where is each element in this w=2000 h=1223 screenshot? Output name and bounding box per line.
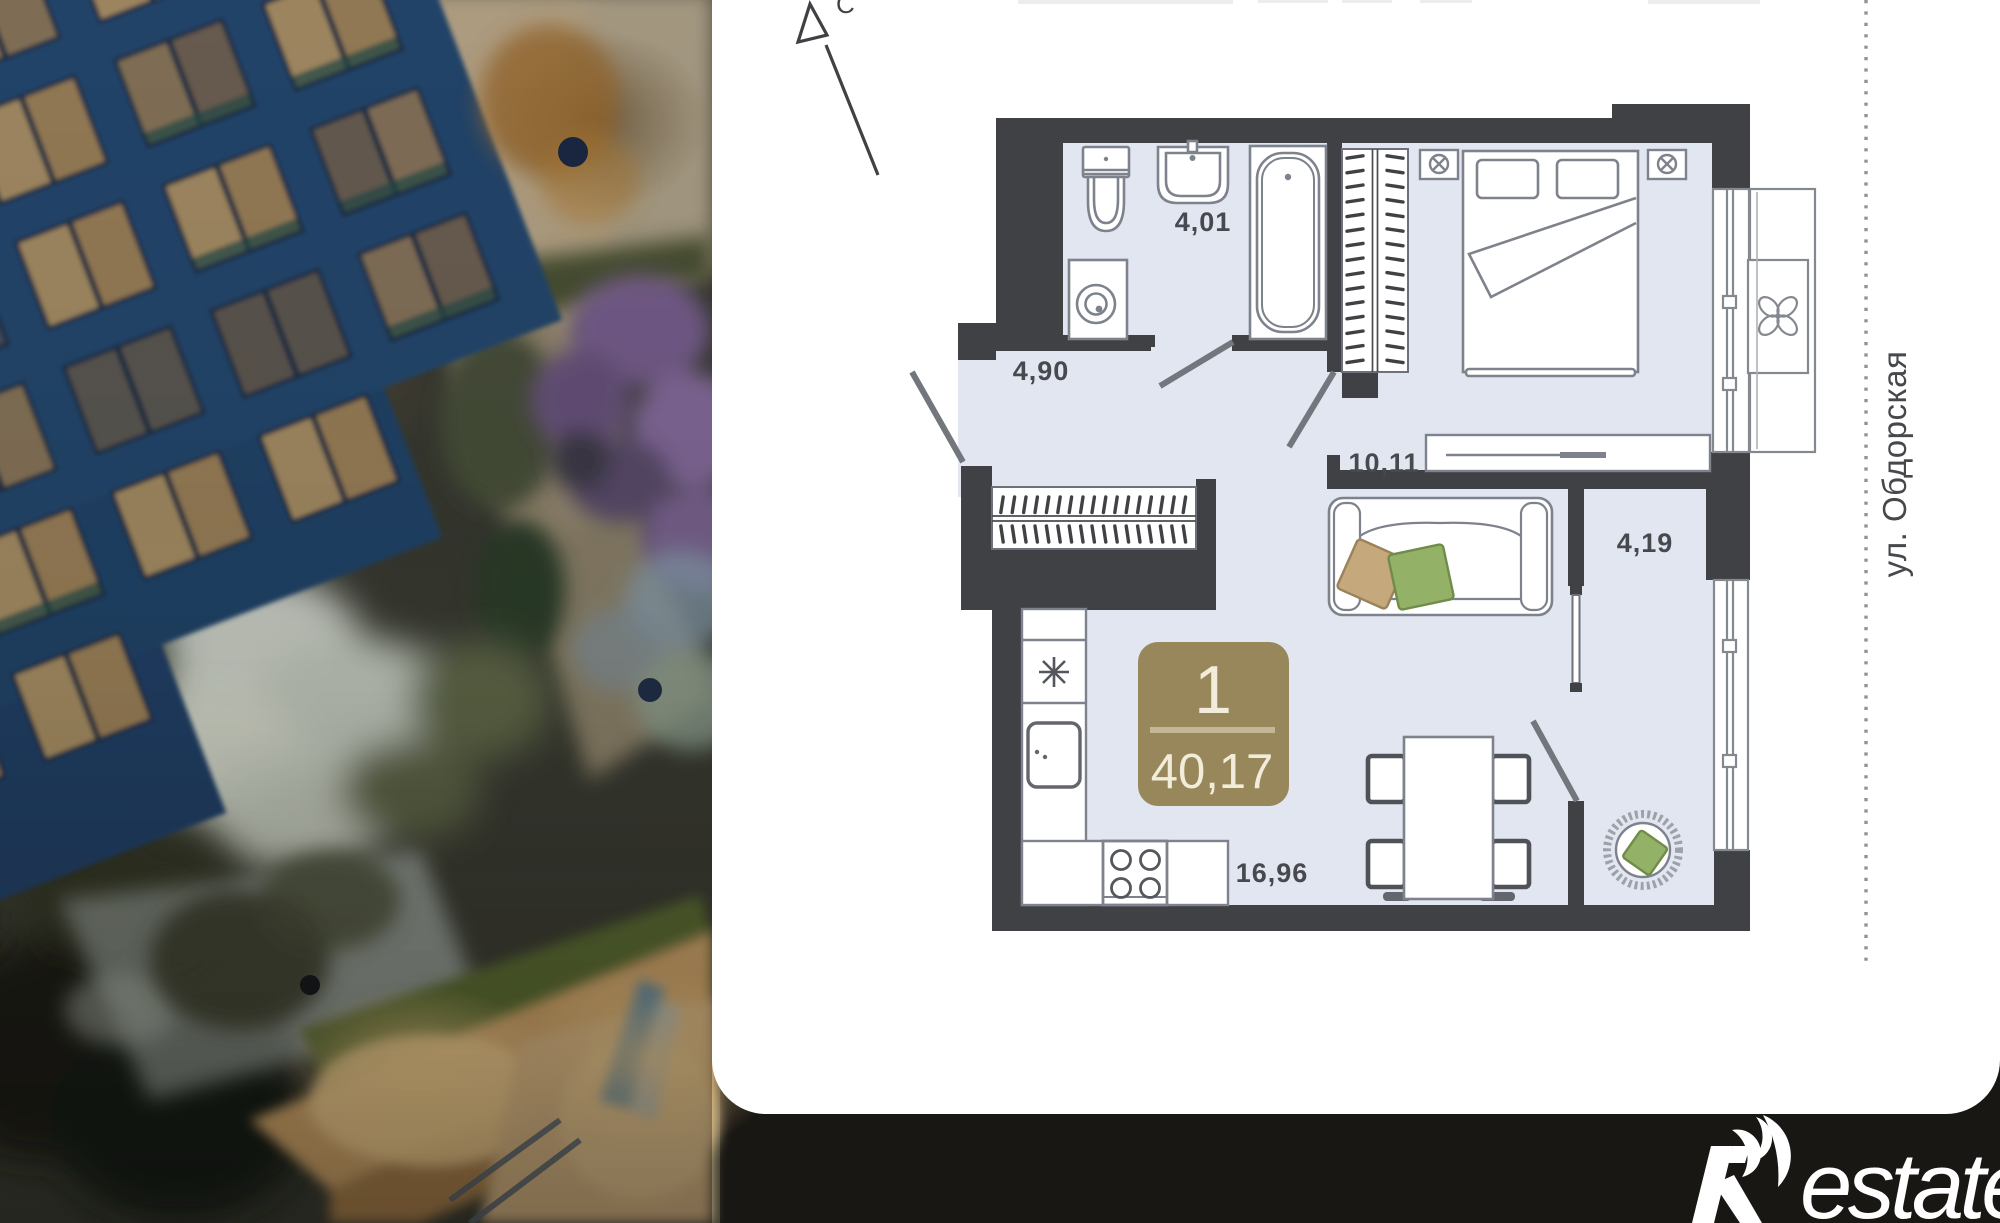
svg-text:40,17: 40,17 [1151, 745, 1274, 799]
svg-text:ул. Обдорская: ул. Обдорская [1876, 351, 1913, 578]
svg-text:16,96: 16,96 [1236, 858, 1309, 888]
svg-text:4,19: 4,19 [1617, 528, 1674, 558]
svg-text:С: С [836, 0, 855, 19]
svg-text:4,01: 4,01 [1175, 207, 1232, 237]
svg-text:1: 1 [1194, 652, 1232, 728]
svg-text:10,11: 10,11 [1348, 448, 1419, 478]
svg-text:4,90: 4,90 [1013, 356, 1070, 386]
